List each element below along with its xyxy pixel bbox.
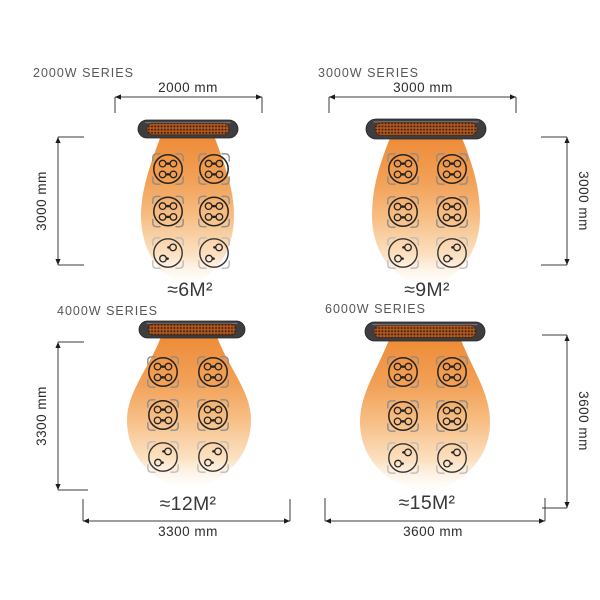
dimension-arrow-icon (510, 94, 516, 99)
heater-bar-icon (365, 322, 485, 341)
coverage-area-label: ≈6M² (167, 279, 213, 301)
dimension-arrow-icon (564, 137, 569, 143)
coverage-area-label: ≈15M² (399, 492, 456, 514)
width-dimension: 2000 mm (115, 80, 262, 113)
height-label: 3600 mm (576, 391, 591, 451)
heater-grill (148, 324, 236, 335)
heater-coverage-diagram: 2000W SERIES 2000 mm (0, 0, 600, 600)
dimension-arrow-icon (55, 137, 60, 143)
width-label: 2000 mm (158, 80, 218, 95)
dimension-arrow-icon (83, 518, 89, 523)
heat-cone-icon (141, 137, 234, 284)
series-title: 6000W SERIES (325, 302, 426, 316)
height-dimension: 3000 mm (541, 137, 591, 265)
series-title: 4000W SERIES (57, 304, 158, 318)
heater-grill (374, 325, 476, 337)
panel-2000w-series: 2000W SERIES 2000 mm (33, 66, 262, 301)
dimension-arrow-icon (539, 518, 545, 523)
width-label: 3600 mm (403, 524, 463, 539)
height-dimension: 3600 mm (542, 335, 591, 508)
dimension-arrow-icon (115, 94, 121, 99)
dimension-arrow-icon (55, 259, 60, 265)
height-label: 3000 mm (34, 171, 49, 231)
coverage-area-label: ≈9M² (404, 279, 450, 301)
heater-grill (147, 123, 229, 135)
height-dimension: 3000 mm (34, 137, 84, 265)
width-label: 3000 mm (393, 80, 453, 95)
width-label: 3300 mm (158, 524, 218, 539)
width-dimension: 3000 mm (329, 80, 516, 113)
heat-cone-icon (127, 337, 251, 488)
series-title: 3000W SERIES (318, 66, 419, 80)
height-label: 3000 mm (576, 171, 591, 231)
panel-4000w-series: 4000W SERIES 3300 mm (34, 304, 290, 539)
dimension-arrow-icon (55, 484, 60, 490)
heater-bar-icon (139, 321, 245, 338)
heater-bar-icon (138, 120, 238, 138)
height-label: 3300 mm (34, 386, 49, 446)
heat-cone-icon (360, 340, 490, 491)
coverage-area-label: ≈12M² (160, 493, 217, 515)
dimension-arrow-icon (329, 94, 335, 99)
heater-coverage-page: 2000W SERIES 2000 mm (0, 0, 600, 600)
panel-6000w-series: 6000W SERIES 3600 mm (325, 302, 591, 539)
dimension-arrow-icon (55, 342, 60, 348)
dimension-arrow-icon (256, 94, 262, 99)
dimension-arrow-icon (325, 518, 331, 523)
panel-3000w-series: 3000W SERIES 3000 mm (318, 66, 591, 301)
dimension-arrow-icon (564, 335, 569, 341)
dimension-arrow-icon (564, 502, 569, 508)
series-title: 2000W SERIES (33, 66, 134, 80)
dimension-arrow-icon (564, 259, 569, 265)
height-dimension: 3300 mm (34, 342, 88, 490)
heater-bar-icon (366, 119, 486, 139)
dimension-arrow-icon (284, 518, 290, 523)
heater-grill (375, 123, 477, 136)
